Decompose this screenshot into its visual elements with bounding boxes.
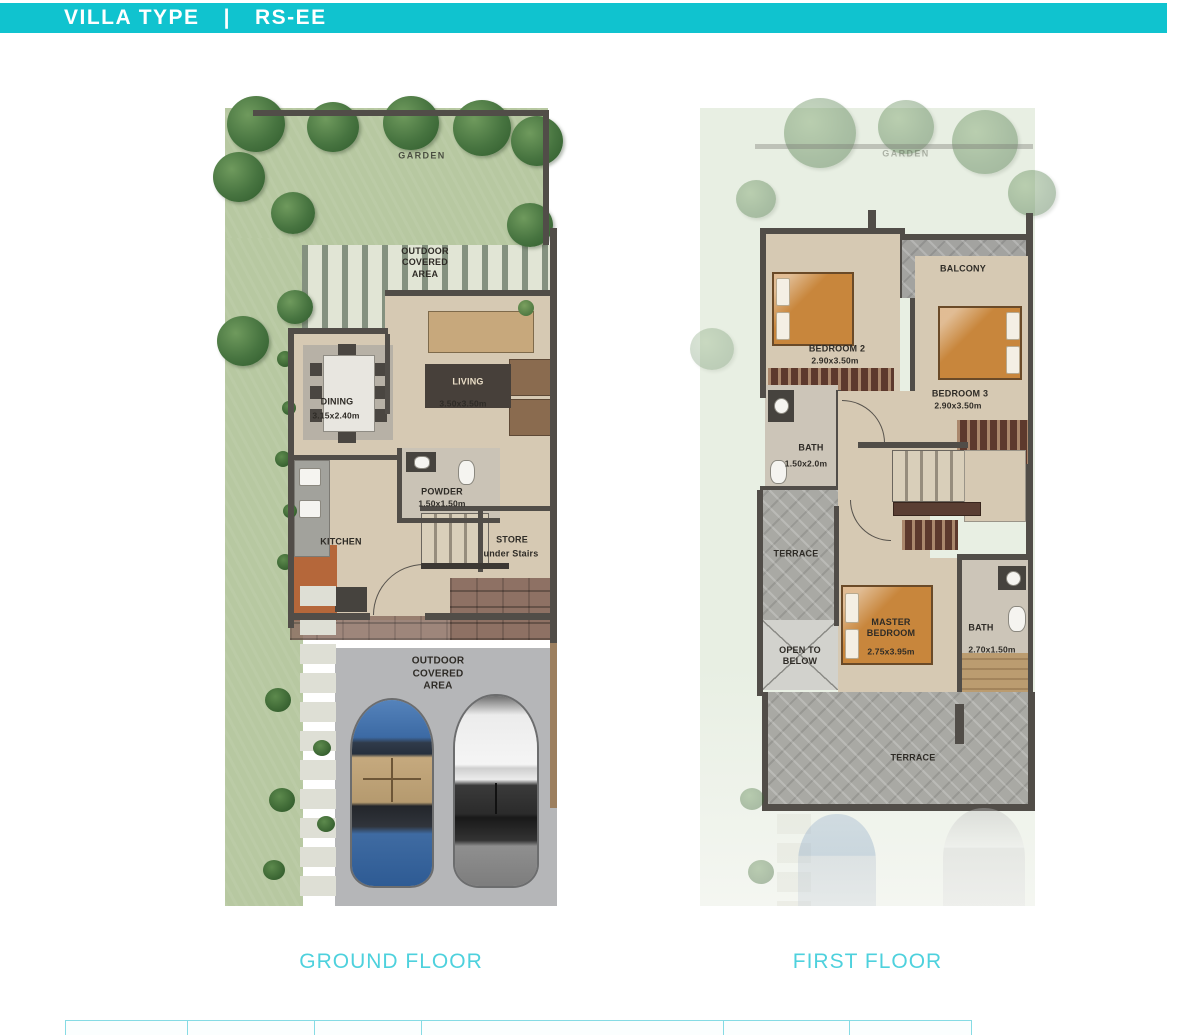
wall [858,442,968,448]
first-floor-caption: FIRST FLOOR [700,950,1035,974]
wall [760,228,766,398]
store-sublabel: under Stairs [484,548,539,559]
table-cell [66,1021,188,1035]
staircase [892,450,966,502]
ghost-car-blue [798,814,876,906]
tree [213,152,265,202]
header-separator: | [224,6,231,30]
master-wardrobe [902,520,958,550]
wall-stub [955,704,964,744]
pillow [776,278,790,306]
bedroom2-dims: 2.90x3.50m [811,356,858,367]
tree [227,96,285,152]
dining-chair [310,363,322,376]
bath2-label: BATH [968,622,993,633]
armchair [509,359,551,396]
bedroom3-bed [938,306,1022,380]
car-seat-line [363,778,421,780]
bath2-basin [1006,571,1021,586]
dining-chair [338,432,356,443]
garden-label: GARDEN [398,150,445,161]
shrub [313,740,331,756]
table-cell [315,1021,422,1035]
wall [757,490,763,696]
ghost-tree [690,328,734,370]
ground-floor-plan: GARDEN OUTDOOR COVERED AREA LIVING 3.50x… [225,108,557,906]
master-bedroom-label: MASTER BEDROOM [856,617,926,640]
wall [385,290,556,296]
wall [957,554,1033,560]
ghost-tree [1008,170,1056,216]
terrace-mid-label: TERRACE [774,548,819,559]
bedroom3-dims: 2.90x3.50m [934,401,981,412]
master-bedroom-dims: 2.75x3.95m [867,647,914,658]
tree [453,100,511,156]
toilet [458,460,475,485]
pillow [1006,346,1020,374]
outdoor-covered-area-label: OUTDOOR COVERED AREA [403,655,473,693]
pillow [1006,312,1020,340]
ghost-tree [952,110,1018,174]
sofa [428,311,534,353]
ghost-tree [736,180,776,218]
table-cell [724,1021,850,1035]
wall [397,518,500,523]
ground-floor-caption: GROUND FLOOR [225,950,557,974]
toilet [1008,606,1026,632]
bottom-table [65,1020,972,1035]
terrace-bottom-floor [768,692,1028,804]
ghost-shrub [748,860,774,884]
car-white [455,696,537,886]
wall [253,110,548,116]
store-label: STORE [496,534,528,545]
wall [762,692,768,810]
ghost-shrub [740,788,764,810]
wall [425,613,556,620]
first-floor-plan: GARDEN [700,108,1035,906]
kitchen-sink [299,468,321,486]
bedroom2-bed [772,272,854,346]
entry-brick-apron [450,578,556,640]
wall [760,228,905,234]
kitchen-hob [299,500,321,518]
tree [277,290,313,324]
dining-label: DINING [321,396,354,407]
powder-dims: 1.50x1.50m [418,499,465,510]
bedroom2-label: BEDROOM 2 [809,343,865,354]
bedroom3-label: BEDROOM 3 [932,388,988,399]
shrub [269,788,295,812]
header-title: VILLA TYPE [64,6,200,30]
open-to-below-label: OPEN TO BELOW [775,645,825,668]
ghost-tree [784,98,856,168]
wall [290,455,400,460]
shrub [265,688,291,712]
outdoor-covered-area-label: OUTDOOR COVERED AREA [392,246,458,280]
ghost-garden-label: GARDEN [882,148,929,159]
plant [518,300,534,316]
wall [834,506,839,626]
kitchen-appliance [335,587,367,612]
boundary-wall [550,643,557,808]
living-dims: 3.50x3.50m [439,399,486,410]
table-cell [188,1021,315,1035]
table-cell [422,1021,724,1035]
bath2-dims: 2.70x1.50m [968,645,1015,656]
wall [288,328,388,334]
wall [288,613,370,620]
stair-banister [421,563,509,569]
pillow [776,312,790,340]
tree [511,116,563,166]
bath1-label: BATH [798,442,823,453]
wall [288,330,294,628]
ghost-car-white [943,808,1025,906]
brochure-page: VILLA TYPE | RS-EE [0,0,1200,1035]
powder-basin [414,456,430,469]
tree [383,96,439,150]
dining-dims: 3.15x2.40m [312,411,359,422]
powder-label: POWDER [421,486,463,497]
header-villa-code: RS-EE [255,6,327,30]
wall [957,560,962,700]
living-label: LIVING [452,376,483,387]
tree [271,192,315,234]
terrace-bottom-label: TERRACE [891,752,936,763]
dining-chair [338,344,356,355]
car-seat-divider [495,783,497,813]
shrub [263,860,285,880]
wall [896,234,1030,240]
wall [1028,692,1035,811]
table-cell [850,1021,971,1035]
kitchen-label: KITCHEN [320,536,361,547]
armchair [509,399,551,436]
balcony-label: BALCONY [940,263,986,274]
bath1-dims: 1.50x2.0m [785,459,827,470]
shrub [317,816,335,832]
wall [385,334,390,414]
wall [543,110,549,245]
header-band: VILLA TYPE | RS-EE [0,3,1167,33]
bath1-basin [774,398,789,414]
car-blue [352,700,432,886]
tree [217,316,269,366]
stair-banister [893,502,981,516]
wall [397,448,402,523]
